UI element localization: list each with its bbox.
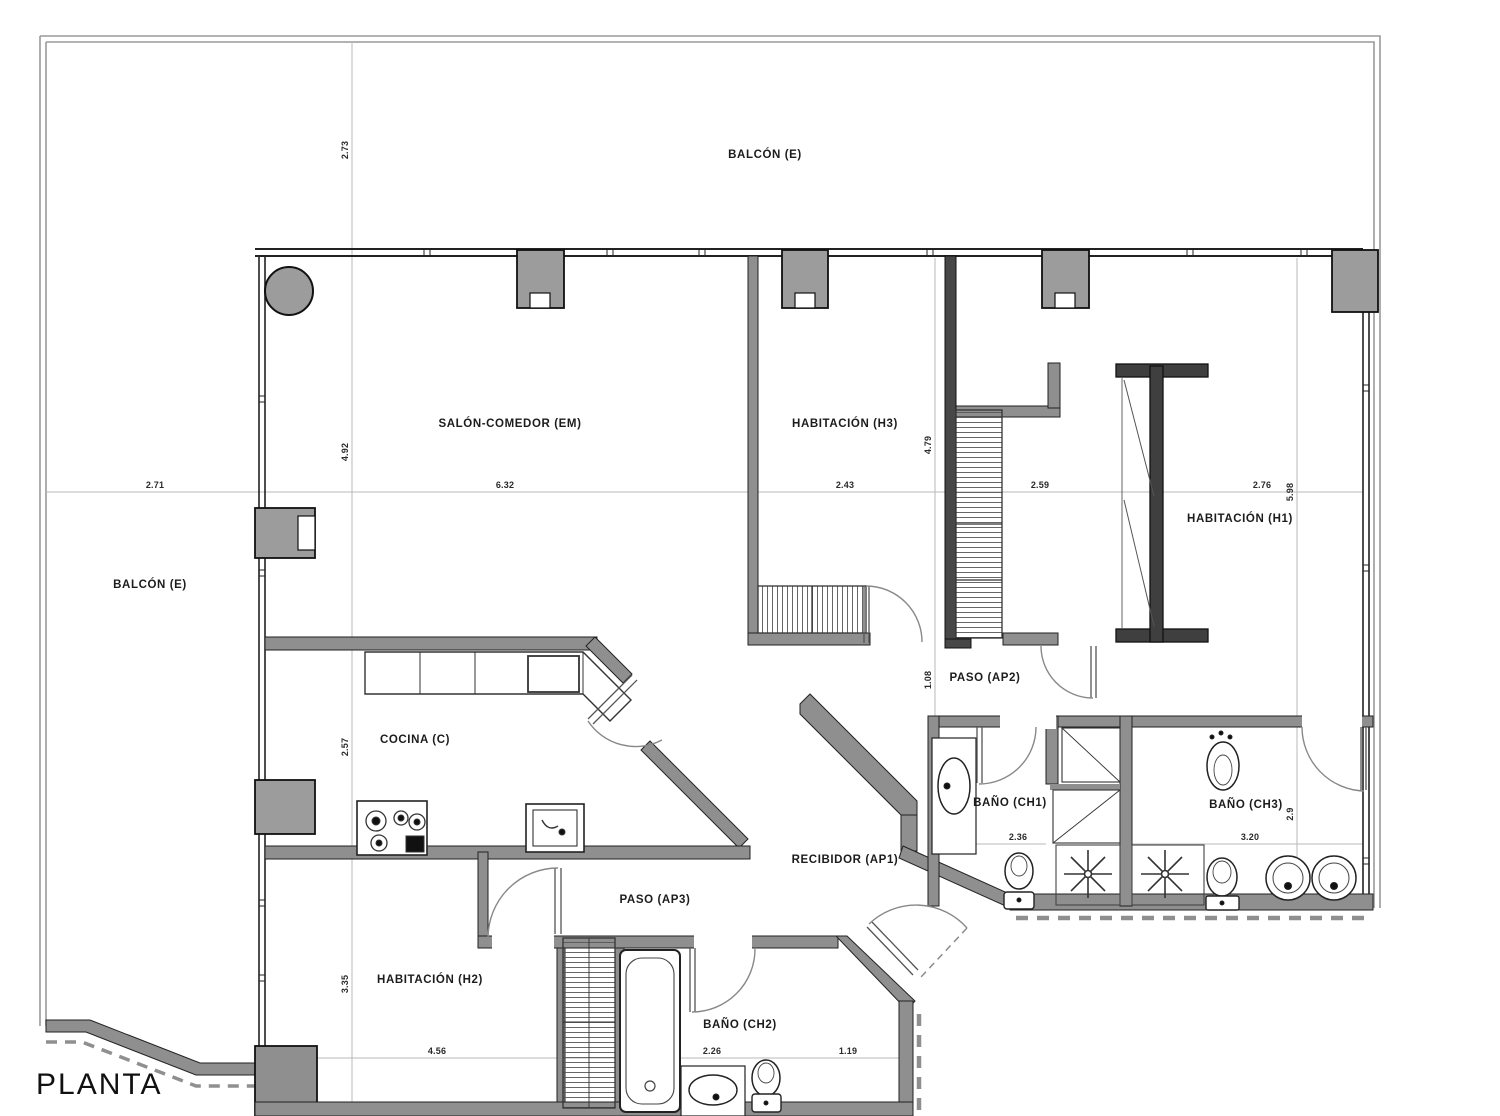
door-ch1 — [977, 727, 1036, 784]
dimension-lines — [46, 42, 1363, 1116]
floor-plan-page: BALCÓN (E) BALCÓN (E) SALÓN-COMEDOR (EM)… — [0, 0, 1500, 1116]
closet-ch1-a — [1062, 728, 1120, 782]
dim-h1-height: 5.98 — [1285, 483, 1295, 501]
dim-salon-width: 6.32 — [496, 480, 514, 490]
dim-h2-width: 4.56 — [428, 1046, 446, 1056]
room-label-recibidor: RECIBIDOR (AP1) — [792, 854, 899, 866]
closet-h3 — [758, 586, 866, 633]
exterior-dashes — [919, 918, 1372, 1112]
kitchen-fixtures — [357, 652, 631, 855]
room-label-bano-ch1: BAÑO (CH1) — [973, 796, 1047, 809]
room-label-salon: SALÓN-COMEDOR (EM) — [438, 417, 581, 430]
room-label-bano-ch2: BAÑO (CH2) — [703, 1018, 777, 1031]
toilet-ch3 — [1206, 858, 1239, 910]
door-h1 — [1041, 646, 1096, 698]
floor-plan-drawing: BALCÓN (E) BALCÓN (E) SALÓN-COMEDOR (EM)… — [0, 0, 1500, 1116]
dim-h2-height: 3.35 — [340, 975, 350, 993]
dim-ch3-width: 3.20 — [1241, 832, 1259, 842]
toilet-ch2 — [752, 1060, 781, 1112]
toilet-ch1 — [1004, 853, 1034, 909]
plan-title: PLANTA — [36, 1068, 162, 1101]
sink-ch1 — [938, 758, 970, 814]
kitchen-sink — [526, 804, 584, 852]
dim-salon-height: 4.92 — [340, 443, 350, 461]
room-label-paso-ap3: PASO (AP3) — [620, 894, 691, 906]
dim-ch1-width: 2.36 — [1009, 832, 1027, 842]
dim-ch3-height: 2.9 — [1285, 807, 1295, 820]
sink-ch2 — [681, 1066, 745, 1116]
kitchen-counter — [365, 652, 631, 721]
room-label-balcon-top: BALCÓN (E) — [728, 148, 802, 161]
stove — [357, 801, 427, 855]
room-label-bano-ch3: BAÑO (CH3) — [1209, 798, 1283, 811]
dim-ap2-width: 2.59 — [1031, 480, 1049, 490]
closet-ch1-b — [1053, 790, 1120, 843]
balcony-railing — [40, 36, 1380, 1026]
door-ch2 — [690, 948, 755, 1012]
room-label-h2: HABITACIÓN (H2) — [377, 973, 483, 986]
door-ch3 — [1302, 727, 1366, 791]
dim-cocina-height: 2.57 — [340, 738, 350, 756]
room-label-paso-ap2: PASO (AP2) — [950, 672, 1021, 684]
room-label-h1: HABITACIÓN (H1) — [1187, 512, 1293, 525]
dim-ap2-passage: 1.08 — [923, 671, 933, 689]
ch2-fixtures — [620, 950, 781, 1116]
bidet-ch3 — [1207, 731, 1239, 790]
closet-ap2 — [956, 410, 1002, 638]
room-label-cocina: COCINA (C) — [380, 734, 450, 746]
round-column — [265, 267, 313, 315]
dim-h3-height: 4.79 — [923, 436, 933, 454]
room-label-h3: HABITACIÓN (H3) — [792, 417, 898, 430]
room-label-balcon-left: BALCÓN (E) — [113, 578, 187, 591]
dim-ch2-right-width: 1.19 — [839, 1046, 857, 1056]
bathtub — [620, 950, 680, 1112]
shower-star-1 — [1064, 850, 1112, 898]
door-h2 — [488, 868, 561, 938]
dim-h1-width: 2.76 — [1253, 480, 1271, 490]
shower-star-2 — [1141, 850, 1189, 898]
dim-balcon-left-width: 2.71 — [146, 480, 164, 490]
round-sink-2 — [1312, 856, 1356, 900]
door-h3 — [864, 586, 922, 643]
wardrobe-h1 — [1116, 364, 1208, 642]
dim-ch2-width: 2.26 — [703, 1046, 721, 1056]
dim-balcon-top-depth: 2.73 — [340, 141, 350, 159]
closet-h2 — [563, 938, 615, 1108]
dim-h3-width: 2.43 — [836, 480, 854, 490]
round-sink-1 — [1266, 856, 1310, 900]
door-entrance — [867, 905, 967, 977]
